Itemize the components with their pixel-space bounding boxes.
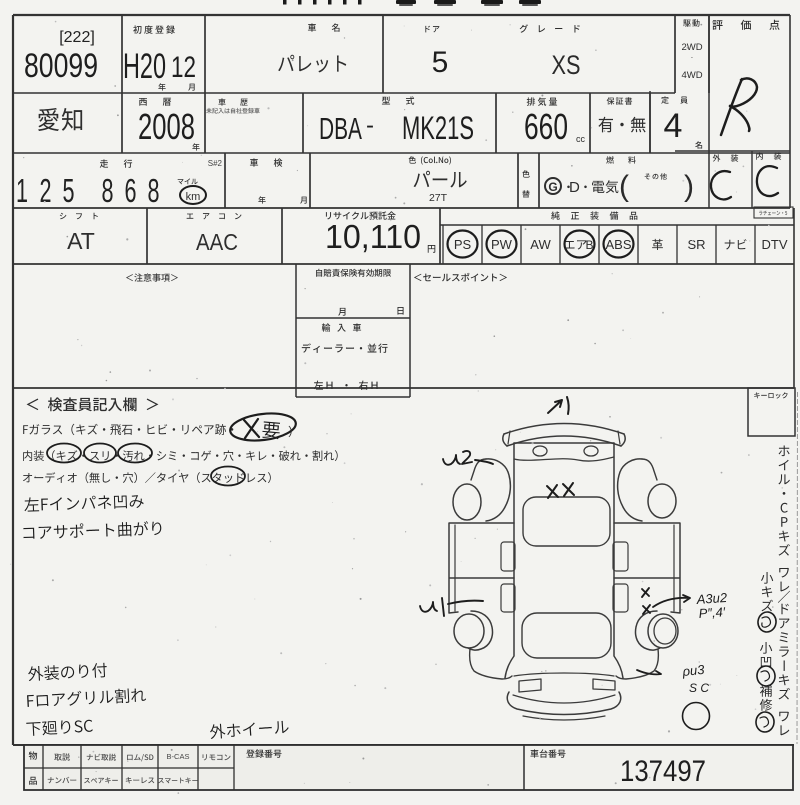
svg-text:80099: 80099 — [24, 47, 98, 85]
svg-text:137497: 137497 — [620, 755, 706, 788]
svg-text:S C: S C — [689, 681, 709, 695]
svg-text:AAC: AAC — [196, 229, 238, 255]
svg-text:[222]: [222] — [59, 29, 95, 46]
svg-text:1: 1 — [16, 172, 28, 209]
svg-text:8: 8 — [148, 172, 160, 209]
svg-text:5: 5 — [63, 172, 75, 209]
svg-text:ABS: ABS — [605, 237, 631, 252]
svg-text:SR: SR — [687, 237, 705, 252]
svg-text:G: G — [548, 180, 557, 194]
svg-text:8: 8 — [102, 172, 114, 209]
svg-text:AW: AW — [530, 237, 551, 252]
svg-text:PW: PW — [491, 237, 513, 252]
svg-text:4WD: 4WD — [681, 70, 702, 81]
svg-text:DBA: DBA — [319, 111, 362, 146]
svg-text:XS: XS — [552, 50, 581, 80]
svg-text:2008: 2008 — [138, 106, 195, 147]
svg-text:-: - — [366, 112, 374, 139]
svg-text:ρu3: ρu3 — [681, 662, 706, 679]
svg-text:27T: 27T — [429, 192, 448, 204]
svg-text:12: 12 — [171, 51, 196, 84]
svg-text:2WD: 2WD — [681, 42, 702, 53]
svg-text:6: 6 — [125, 172, 137, 209]
svg-text:10,110: 10,110 — [325, 218, 421, 255]
svg-text:P″,4′: P″,4′ — [698, 604, 726, 621]
svg-text:DTV: DTV — [762, 237, 788, 252]
svg-text:S#2: S#2 — [208, 159, 223, 168]
svg-text:km: km — [186, 191, 201, 203]
svg-text:2: 2 — [40, 172, 52, 209]
svg-text:(: ( — [619, 170, 629, 203]
svg-text:5: 5 — [432, 46, 449, 79]
svg-text:B-CAS: B-CAS — [167, 752, 190, 761]
svg-text:AT: AT — [67, 228, 95, 254]
svg-text:660: 660 — [524, 106, 568, 147]
svg-text:·: · — [691, 53, 694, 62]
svg-text:D: D — [569, 179, 580, 196]
svg-text:4: 4 — [664, 107, 683, 145]
svg-text:cc: cc — [576, 134, 586, 144]
svg-text:H20: H20 — [123, 47, 166, 86]
svg-text:MK21S: MK21S — [402, 110, 474, 146]
svg-text:): ) — [684, 170, 694, 203]
svg-text:PS: PS — [454, 237, 472, 252]
